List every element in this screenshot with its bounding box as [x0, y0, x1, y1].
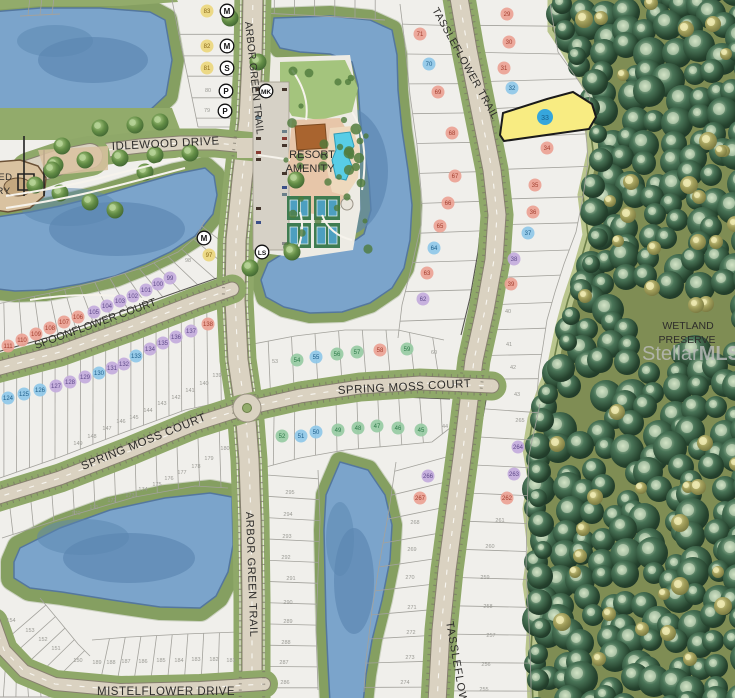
- svg-text:293: 293: [282, 534, 291, 540]
- svg-text:153: 153: [25, 628, 34, 634]
- svg-text:45: 45: [418, 428, 425, 434]
- svg-text:58: 58: [377, 348, 384, 354]
- svg-text:98: 98: [185, 258, 191, 264]
- svg-text:135: 135: [158, 341, 169, 347]
- svg-text:79: 79: [204, 108, 210, 114]
- svg-text:256: 256: [481, 662, 490, 668]
- svg-text:132: 132: [119, 362, 130, 368]
- svg-text:273: 273: [405, 655, 414, 661]
- svg-text:32: 32: [509, 86, 516, 92]
- svg-text:181: 181: [226, 658, 235, 664]
- svg-text:M: M: [201, 234, 208, 243]
- svg-text:146: 146: [116, 419, 125, 425]
- svg-text:42: 42: [510, 365, 516, 371]
- svg-text:188: 188: [106, 660, 115, 666]
- svg-text:286: 286: [280, 680, 289, 686]
- svg-text:36: 36: [530, 210, 537, 216]
- svg-text:103: 103: [115, 299, 126, 305]
- svg-text:30: 30: [506, 40, 513, 46]
- svg-text:101: 101: [141, 288, 152, 294]
- svg-text:47: 47: [374, 424, 381, 430]
- svg-text:265: 265: [515, 418, 524, 424]
- svg-text:138: 138: [203, 322, 214, 328]
- svg-text:186: 186: [138, 659, 147, 665]
- svg-text:51: 51: [298, 434, 305, 440]
- svg-text:178: 178: [191, 464, 200, 470]
- svg-text:46: 46: [395, 426, 402, 432]
- svg-text:34: 34: [544, 146, 551, 152]
- svg-text:99: 99: [167, 276, 174, 282]
- svg-text:70: 70: [426, 62, 433, 68]
- svg-text:ENTRY: ENTRY: [0, 186, 11, 197]
- svg-text:71: 71: [417, 32, 424, 38]
- svg-text:55: 55: [313, 355, 320, 361]
- svg-text:294: 294: [283, 512, 292, 518]
- svg-text:263: 263: [509, 472, 520, 478]
- svg-text:185: 185: [156, 658, 165, 664]
- svg-text:262: 262: [502, 496, 513, 502]
- svg-text:39: 39: [508, 282, 515, 288]
- svg-text:108: 108: [45, 326, 56, 332]
- svg-text:66: 66: [445, 201, 452, 207]
- svg-text:145: 145: [129, 415, 138, 421]
- svg-text:292: 292: [281, 555, 290, 561]
- svg-text:110: 110: [17, 338, 27, 344]
- svg-text:97: 97: [206, 253, 213, 259]
- svg-text:257: 257: [486, 633, 495, 639]
- svg-text:267: 267: [415, 496, 426, 502]
- svg-text:179: 179: [204, 456, 213, 462]
- svg-text:37: 37: [525, 231, 532, 237]
- svg-text:170: 170: [71, 511, 80, 517]
- svg-text:295: 295: [285, 490, 294, 496]
- svg-text:AMENITY: AMENITY: [286, 163, 336, 175]
- svg-text:187: 187: [121, 659, 130, 665]
- svg-text:142: 142: [171, 395, 180, 401]
- svg-text:111: 111: [3, 344, 13, 350]
- svg-text:MISTELFLOWER DRIVE: MISTELFLOWER DRIVE: [97, 686, 235, 698]
- svg-text:176: 176: [164, 476, 173, 482]
- svg-text:288: 288: [281, 640, 290, 646]
- svg-text:144: 144: [143, 408, 152, 414]
- svg-text:183: 183: [191, 657, 200, 663]
- svg-text:259: 259: [480, 575, 489, 581]
- svg-text:189: 189: [92, 660, 101, 666]
- svg-text:StellarMLS: StellarMLS: [642, 343, 735, 365]
- svg-text:64: 64: [431, 246, 438, 252]
- svg-text:152: 152: [38, 637, 47, 643]
- svg-text:125: 125: [19, 392, 30, 398]
- svg-text:266: 266: [423, 474, 434, 480]
- svg-text:261: 261: [495, 518, 504, 524]
- svg-text:287: 287: [279, 660, 288, 666]
- svg-text:290: 290: [283, 600, 292, 606]
- svg-text:69: 69: [435, 90, 442, 96]
- svg-text:127: 127: [51, 384, 62, 390]
- svg-text:33: 33: [541, 115, 549, 122]
- svg-text:53: 53: [272, 359, 278, 365]
- svg-text:68: 68: [449, 131, 456, 137]
- svg-text:172: 172: [107, 498, 116, 504]
- svg-text:106: 106: [73, 315, 84, 321]
- svg-text:48: 48: [355, 426, 362, 432]
- svg-text:143: 143: [157, 401, 166, 407]
- svg-text:S: S: [224, 64, 230, 73]
- svg-text:174: 174: [138, 487, 147, 493]
- svg-text:128: 128: [65, 380, 76, 386]
- svg-text:129: 129: [80, 375, 91, 381]
- svg-text:82: 82: [204, 44, 211, 50]
- svg-text:60: 60: [431, 350, 437, 356]
- svg-text:182: 182: [209, 657, 218, 663]
- svg-text:67: 67: [452, 174, 459, 180]
- svg-text:38: 38: [511, 257, 518, 263]
- svg-text:29: 29: [504, 12, 511, 18]
- svg-text:139: 139: [212, 373, 221, 379]
- svg-text:43: 43: [514, 392, 520, 398]
- svg-text:154: 154: [6, 618, 15, 624]
- svg-text:148: 148: [87, 434, 96, 440]
- svg-text:149: 149: [73, 441, 82, 447]
- svg-text:M: M: [224, 42, 231, 51]
- svg-text:131: 131: [107, 366, 118, 372]
- svg-text:271: 271: [407, 605, 416, 611]
- svg-text:130: 130: [94, 371, 105, 377]
- svg-text:63: 63: [424, 271, 431, 277]
- svg-text:80: 80: [205, 88, 211, 94]
- svg-text:258: 258: [483, 604, 492, 610]
- svg-text:272: 272: [406, 630, 415, 636]
- svg-text:291: 291: [286, 576, 295, 582]
- svg-text:102: 102: [128, 294, 139, 300]
- svg-text:83: 83: [204, 9, 211, 15]
- svg-text:81: 81: [204, 66, 211, 72]
- svg-text:289: 289: [283, 619, 292, 625]
- svg-text:140: 140: [199, 381, 208, 387]
- svg-text:260: 260: [485, 544, 494, 550]
- svg-text:171: 171: [89, 505, 98, 511]
- svg-text:59: 59: [404, 347, 411, 353]
- svg-text:50: 50: [313, 430, 320, 436]
- svg-text:177: 177: [177, 470, 186, 476]
- svg-text:264: 264: [513, 445, 524, 451]
- svg-text:175: 175: [152, 482, 161, 488]
- svg-text:147: 147: [102, 426, 111, 432]
- svg-text:274: 274: [400, 680, 409, 686]
- svg-text:M: M: [224, 7, 231, 16]
- svg-text:104: 104: [102, 304, 113, 310]
- svg-text:151: 151: [51, 646, 60, 652]
- svg-text:255: 255: [479, 687, 488, 693]
- svg-text:56: 56: [334, 352, 341, 358]
- svg-text:141: 141: [185, 388, 194, 394]
- svg-text:124: 124: [3, 396, 14, 402]
- svg-text:270: 270: [405, 575, 414, 581]
- svg-text:173: 173: [125, 493, 134, 499]
- svg-text:150: 150: [73, 658, 82, 664]
- svg-text:41: 41: [506, 342, 512, 348]
- svg-text:54: 54: [294, 358, 301, 364]
- svg-text:133: 133: [131, 354, 142, 360]
- svg-text:107: 107: [59, 320, 70, 326]
- svg-text:44: 44: [442, 424, 448, 430]
- svg-text:40: 40: [505, 309, 511, 315]
- svg-text:126: 126: [35, 388, 46, 394]
- svg-text:GATED: GATED: [0, 172, 13, 183]
- svg-text:136: 136: [171, 335, 182, 341]
- svg-text:WETLAND: WETLAND: [662, 320, 714, 332]
- svg-text:268: 268: [410, 520, 419, 526]
- svg-text:269: 269: [407, 547, 416, 553]
- svg-text:31: 31: [501, 66, 508, 72]
- svg-text:180: 180: [220, 446, 229, 452]
- svg-text:P: P: [223, 87, 229, 96]
- svg-text:134: 134: [145, 347, 156, 353]
- svg-text:RESORT: RESORT: [289, 149, 335, 161]
- svg-text:P: P: [222, 107, 228, 116]
- svg-text:62: 62: [420, 297, 427, 303]
- svg-text:65: 65: [437, 224, 444, 230]
- svg-text:35: 35: [532, 183, 539, 189]
- svg-text:184: 184: [174, 658, 183, 664]
- svg-text:57: 57: [354, 350, 361, 356]
- svg-text:49: 49: [335, 428, 342, 434]
- svg-text:52: 52: [279, 434, 286, 440]
- svg-text:LS: LS: [258, 250, 267, 257]
- svg-text:105: 105: [89, 310, 100, 316]
- svg-text:137: 137: [186, 329, 197, 335]
- svg-text:100: 100: [153, 282, 164, 288]
